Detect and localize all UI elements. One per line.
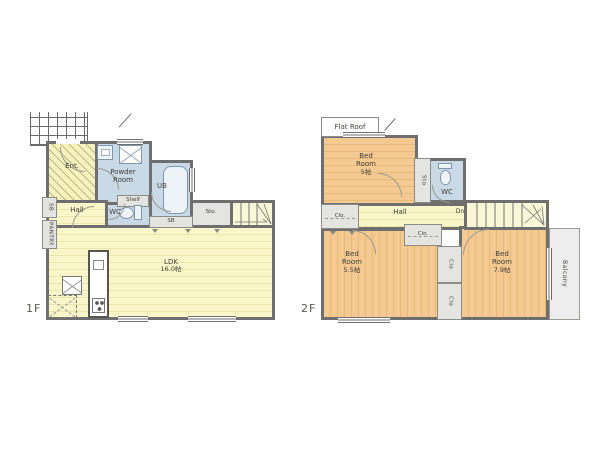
entrance-door-opening: [56, 139, 80, 144]
closet-center-label: Clo.: [418, 232, 428, 238]
floorplan-canvas: Shelf SB SB PANTRY Ent. Powder: [0, 0, 600, 449]
toilet-bowl-2f: [440, 170, 451, 185]
bedroom3-label: Bed Room7.9帖: [482, 250, 522, 275]
wc-1f-label: WC: [106, 208, 124, 216]
shoe-box-label: SB: [47, 203, 53, 211]
bath-storage-label: SB: [167, 219, 174, 225]
entrance-label: Ent.: [56, 162, 88, 170]
kitchen-sink-icon: [93, 260, 104, 270]
hall-1f-label: Hall: [62, 206, 92, 214]
table-icon: [62, 276, 82, 295]
closet-left-box: Clo.: [321, 204, 359, 229]
bedroom2-size: 5.5帖: [332, 267, 372, 275]
stairs-1f: [230, 200, 275, 228]
floor-1f-label: 1F: [26, 302, 41, 315]
closet-mid-top-box: Clo: [437, 246, 462, 283]
floor-mat-icon: [48, 295, 77, 318]
window-bedroom1-top: [343, 132, 385, 138]
hall-2f-label: Hall: [385, 208, 415, 216]
balcony: Balcony: [549, 228, 580, 320]
vent-mark: [330, 231, 336, 235]
toilet-tank-1f: [134, 205, 142, 220]
bedroom1-label: Bed Room5帖: [346, 152, 386, 177]
vent-mark: [214, 229, 220, 233]
closet-mid-top-label: Clo: [447, 259, 453, 269]
sink-bowl: [101, 149, 110, 156]
ldk-size: 16.0帖: [143, 266, 199, 274]
stove-icon: [92, 298, 105, 313]
shoe-box: SB: [42, 197, 57, 218]
flat-roof-label: Flat Roof: [335, 123, 366, 131]
window-bedroom2-bottom: [338, 317, 390, 323]
closet-mid-bottom-box: Clo: [437, 283, 462, 320]
closet-left-label: Clo.: [335, 214, 345, 220]
kitchen-counter: [88, 250, 109, 318]
window-bath-right: [189, 168, 195, 192]
bedroom3-name: Bed Room: [487, 250, 517, 267]
stairs-2f: [464, 200, 549, 230]
balcony-label: Balcony: [561, 260, 568, 287]
window-bedroom3-balcony: [546, 248, 552, 300]
window-ldk-bottom-2: [188, 316, 236, 322]
stairs-1f-treads: [233, 203, 272, 225]
floor-2f-label: 2F: [301, 302, 316, 315]
pantry-label: PANTRY: [47, 222, 53, 246]
closet-mid-bottom-label: Clo: [447, 296, 453, 306]
window-ldk-bottom-1: [118, 316, 148, 322]
vanity-sink-icon: [97, 145, 113, 160]
down-label: Dn: [450, 208, 470, 215]
closet-center-box: Clo.: [404, 224, 442, 246]
powder-room-label: Powder Room: [108, 168, 138, 185]
storage-2f-box: Sto: [414, 158, 431, 203]
storage-2f-label: Sto: [420, 175, 426, 186]
ub-label: UB: [150, 182, 174, 190]
wc-2f-label: WC: [436, 188, 458, 196]
ldk-label: LDK16.0帖: [143, 258, 199, 274]
bedroom1-size: 5帖: [346, 169, 386, 177]
washing-machine-icon: [119, 145, 142, 164]
bath-storage-strip: SB: [149, 216, 193, 228]
vent-mark: [185, 229, 191, 233]
storage-1f-label: Sto.: [196, 209, 226, 216]
shelf-label: Shelf: [126, 198, 140, 204]
roof-slash-mark-2f: [384, 118, 395, 131]
stairs-2f-treads: [467, 203, 546, 227]
bedroom3-size: 7.9帖: [482, 267, 522, 275]
toilet-tank-2f: [438, 163, 452, 169]
window-powder-top: [117, 139, 143, 145]
vent-mark: [349, 231, 355, 235]
vent-mark: [152, 229, 158, 233]
bedroom1-name: Bed Room: [351, 152, 381, 169]
pantry-box: PANTRY: [42, 220, 57, 249]
bedroom2-label: Bed Room5.5帖: [332, 250, 372, 275]
roof-slash-mark: [119, 113, 132, 127]
bedroom2-name: Bed Room: [337, 250, 367, 267]
